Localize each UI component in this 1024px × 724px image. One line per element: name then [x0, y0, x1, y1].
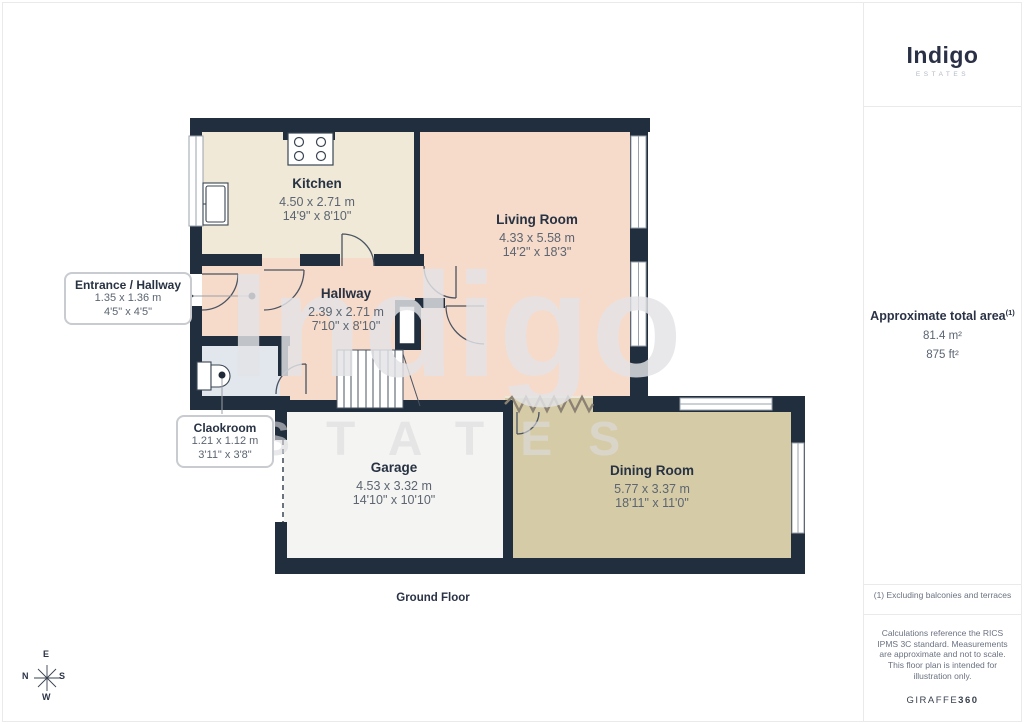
total-area-ft2: 875 ft² [864, 349, 1021, 361]
provider-name: GIRAFFE [906, 695, 958, 706]
cloakroom-name: Claokroom [180, 421, 270, 435]
agency-logo: Indigo ESTATES [864, 42, 1021, 78]
area-footnote: (1) Excluding balconies and terraces [864, 590, 1021, 600]
callout-entrance-hallway: Entrance / Hallway 1.35 x 1.36 m 4'5" x … [64, 272, 192, 325]
room-label-living-room: Living Room 4.33 x 5.58 m 14'2" x 18'3" [427, 212, 647, 259]
garage-name: Garage [284, 460, 504, 476]
sidebar-footnote-divider-bottom [864, 614, 1021, 615]
total-area-m2: 81.4 m² [864, 330, 1021, 342]
cloakroom-metric: 1.21 x 1.12 m [180, 435, 270, 448]
room-label-kitchen: Kitchen 4.50 x 2.71 m 14'9" x 8'10" [207, 176, 427, 223]
disclaimer-block: Calculations reference the RICS IPMS 3C … [864, 628, 1021, 706]
living-room-imperial: 14'2" x 18'3" [427, 245, 647, 259]
compass-north: N [22, 671, 29, 681]
agency-logo-text: Indigo [864, 42, 1021, 69]
sidebar-footnote-divider-top [864, 584, 1021, 585]
hallway-name: Hallway [236, 286, 456, 302]
total-area-label: Approximate total area(1) [864, 308, 1021, 323]
living-room-metric: 4.33 x 5.58 m [427, 231, 647, 245]
room-label-garage: Garage 4.53 x 3.32 m 14'10" x 10'10" [284, 460, 504, 507]
sidebar-logo-divider [864, 106, 1021, 107]
kitchen-metric: 4.50 x 2.71 m [207, 195, 427, 209]
dining-room-metric: 5.77 x 3.37 m [542, 482, 762, 496]
kitchen-name: Kitchen [207, 176, 427, 192]
compass-rose [34, 665, 60, 691]
room-label-dining-room: Dining Room 5.77 x 3.37 m 18'11" x 11'0" [542, 463, 762, 510]
room-label-hallway: Hallway 2.39 x 2.71 m 7'10" x 8'10" [236, 286, 456, 333]
floorplan-svg [0, 0, 1024, 724]
total-area-label-text: Approximate total area [870, 309, 1005, 323]
compass-east: E [43, 649, 49, 659]
disclaimer-text: Calculations reference the RICS IPMS 3C … [864, 628, 1021, 681]
hallway-metric: 2.39 x 2.71 m [236, 305, 456, 319]
cloakroom-imperial: 3'11" x 3'8" [180, 449, 270, 462]
stove-icon [288, 133, 333, 165]
compass-south: S [59, 671, 65, 681]
garage-metric: 4.53 x 3.32 m [284, 479, 504, 493]
floorplan-page: Indigo ESTATES Kitchen 4.50 x 2.71 m 14'… [0, 0, 1024, 724]
hallway-imperial: 7'10" x 8'10" [236, 319, 456, 333]
callout-cloakroom: Claokroom 1.21 x 1.12 m 3'11" x 3'8" [176, 415, 274, 468]
provider-number: 360 [958, 695, 978, 706]
garage-imperial: 14'10" x 10'10" [284, 493, 504, 507]
floor-label: Ground Floor [348, 592, 518, 604]
total-area-superscript: (1) [1006, 308, 1015, 317]
dining-room-name: Dining Room [542, 463, 762, 479]
total-area-block: Approximate total area(1) 81.4 m² 875 ft… [864, 308, 1021, 361]
provider-logo: GIRAFFE360 [864, 695, 1021, 706]
kitchen-imperial: 14'9" x 8'10" [207, 209, 427, 223]
entrance-hallway-name: Entrance / Hallway [68, 278, 188, 292]
entrance-hallway-metric: 1.35 x 1.36 m [68, 292, 188, 305]
dining-room-imperial: 18'11" x 11'0" [542, 496, 762, 510]
compass-west: W [42, 692, 51, 702]
agency-logo-subtext: ESTATES [864, 71, 1021, 78]
living-room-name: Living Room [427, 212, 647, 228]
entrance-hallway-imperial: 4'5" x 4'5" [68, 306, 188, 319]
